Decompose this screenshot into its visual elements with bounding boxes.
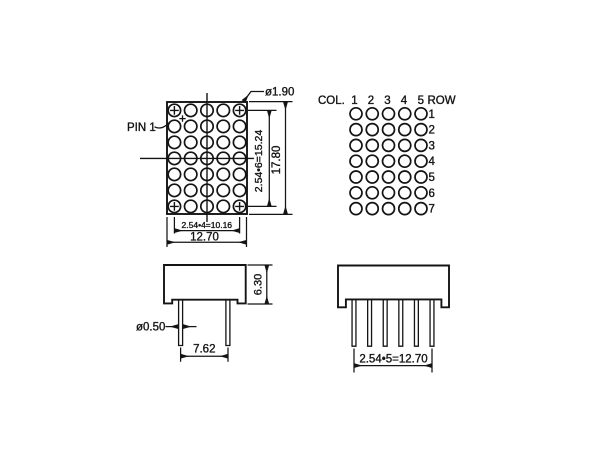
svg-text:6: 6 xyxy=(429,188,435,200)
svg-text:4: 4 xyxy=(401,95,408,107)
svg-text:12.70: 12.70 xyxy=(190,232,219,244)
svg-text:1: 1 xyxy=(351,95,357,107)
svg-text:2.54•6=15.24: 2.54•6=15.24 xyxy=(253,130,265,193)
svg-text:6.30: 6.30 xyxy=(253,274,265,295)
svg-text:3: 3 xyxy=(384,95,390,107)
svg-text:ø1.90: ø1.90 xyxy=(265,87,294,99)
svg-text:17.80: 17.80 xyxy=(271,146,283,175)
svg-text:ø0.50: ø0.50 xyxy=(136,322,165,334)
svg-text:2: 2 xyxy=(429,125,435,137)
svg-text:5: 5 xyxy=(418,95,424,107)
svg-text:1: 1 xyxy=(429,109,435,121)
svg-text:4: 4 xyxy=(429,156,436,168)
svg-text:7.62: 7.62 xyxy=(193,344,215,356)
svg-text:PIN 1: PIN 1 xyxy=(127,122,156,134)
svg-text:ROW: ROW xyxy=(428,95,456,107)
svg-text:5: 5 xyxy=(429,172,435,184)
svg-text:2.54•5=12.70: 2.54•5=12.70 xyxy=(359,353,427,365)
svg-text:2: 2 xyxy=(368,95,374,107)
svg-text:3: 3 xyxy=(429,140,435,152)
svg-text:COL.: COL. xyxy=(318,95,345,107)
svg-text:2.54•4=10.16: 2.54•4=10.16 xyxy=(182,220,233,230)
svg-text:7: 7 xyxy=(429,204,435,216)
